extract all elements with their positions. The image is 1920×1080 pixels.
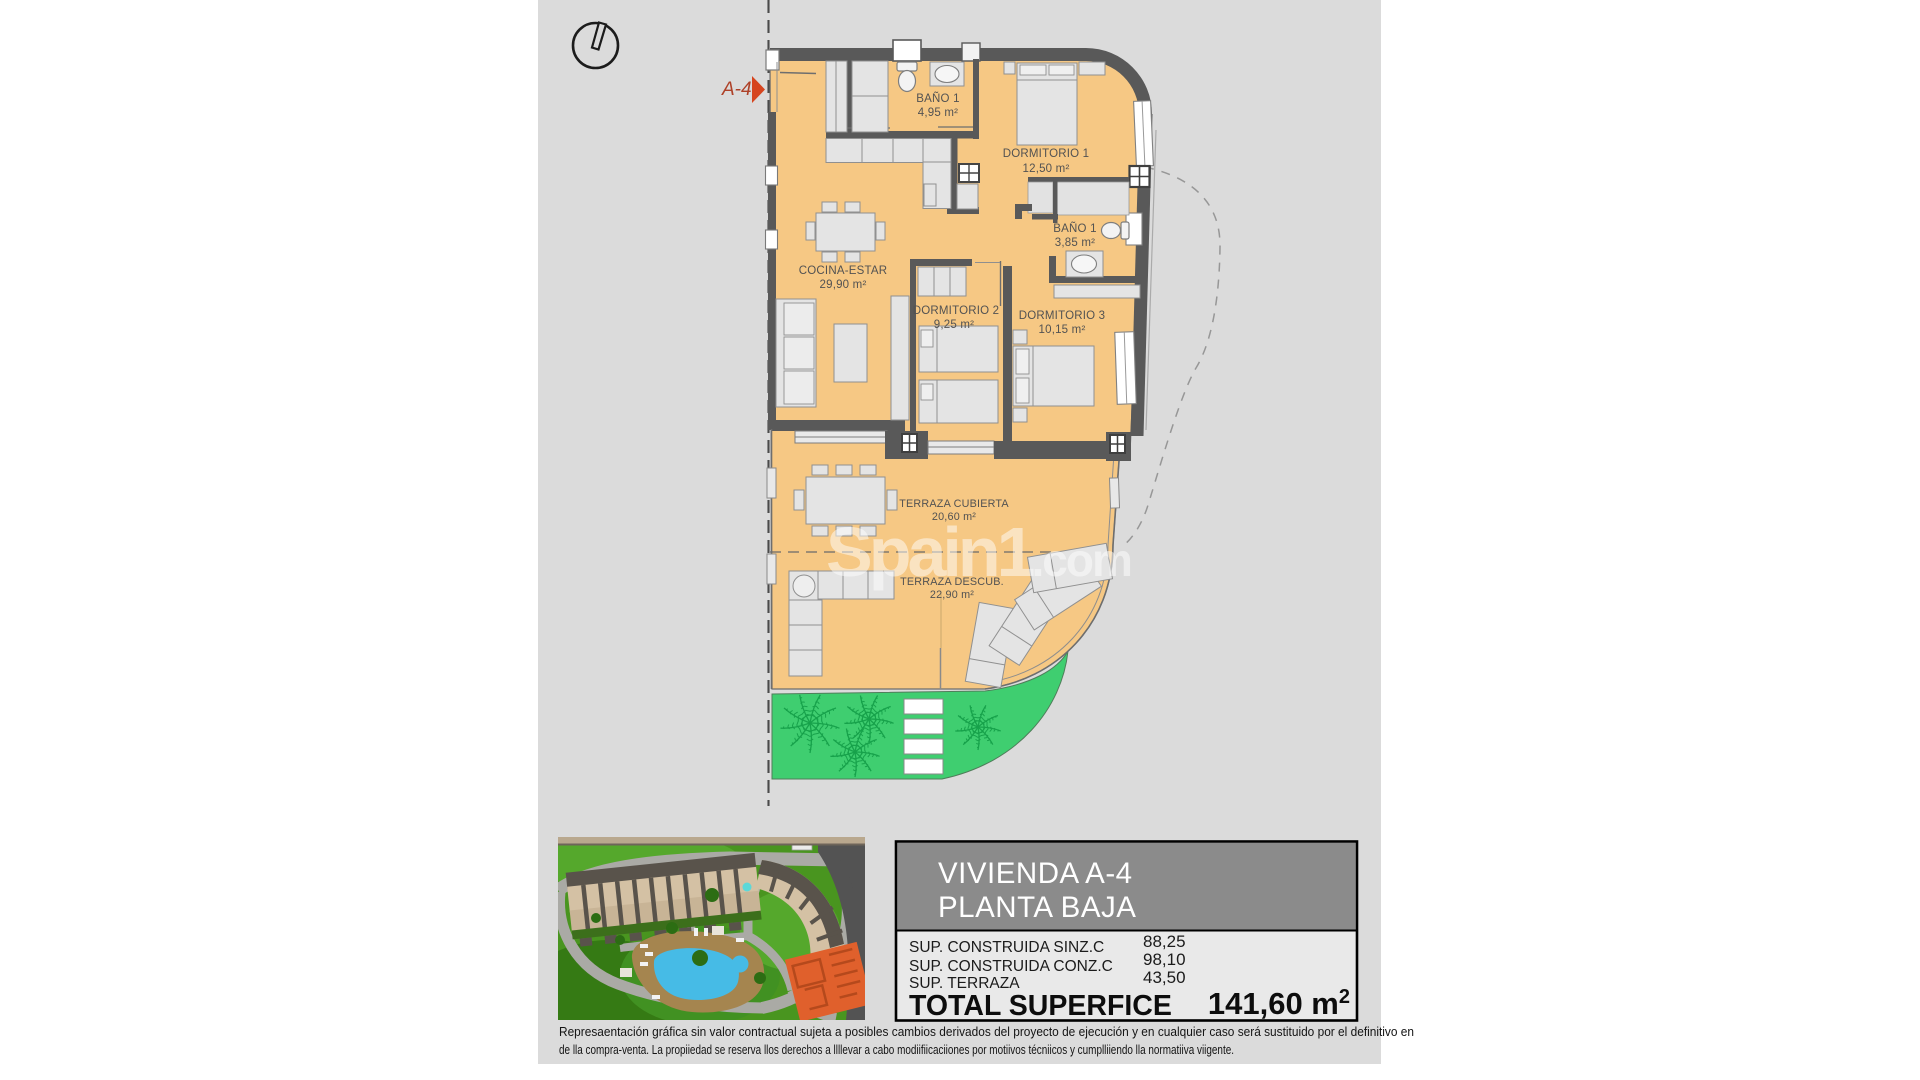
- svg-text:PLANTA BAJA: PLANTA BAJA: [938, 891, 1136, 924]
- svg-text:COCINA-ESTAR: COCINA-ESTAR: [799, 265, 887, 277]
- svg-text:88,25: 88,25: [1143, 932, 1186, 951]
- svg-text:SUP. CONSTRUIDA SINZ.C: SUP. CONSTRUIDA SINZ.C: [909, 939, 1104, 956]
- svg-text:DORMITORIO 3: DORMITORIO 3: [1019, 310, 1106, 322]
- svg-text:TERRAZA CUBIERTA: TERRAZA CUBIERTA: [899, 498, 1009, 510]
- svg-text:12,50 m²: 12,50 m²: [1023, 163, 1070, 175]
- svg-text:de lla compra-venta. La propii: de lla compra-venta. La propiiedad se re…: [559, 1043, 1234, 1057]
- svg-text:A-4: A-4: [721, 79, 752, 100]
- svg-text:9,25 m²: 9,25 m²: [934, 319, 974, 331]
- svg-text:BAÑO 1: BAÑO 1: [916, 92, 959, 105]
- svg-text:SUP. CONSTRUIDA CONZ.C: SUP. CONSTRUIDA CONZ.C: [909, 958, 1113, 975]
- svg-text:29,90 m²: 29,90 m²: [820, 279, 867, 291]
- svg-text:141,60 m2: 141,60 m2: [1208, 986, 1350, 1021]
- svg-text:Represaentación gráfica sin va: Represaentación gráfica sin valor contra…: [559, 1025, 1414, 1039]
- svg-text:VIVIENDA A-4: VIVIENDA A-4: [938, 857, 1133, 890]
- svg-text:98,10: 98,10: [1143, 950, 1186, 969]
- svg-text:TOTAL SUPERFICE: TOTAL SUPERFICE: [909, 990, 1172, 1022]
- svg-text:43,50: 43,50: [1143, 968, 1186, 987]
- svg-text:10,15 m²: 10,15 m²: [1039, 324, 1086, 336]
- svg-text:BAÑO 1: BAÑO 1: [1053, 222, 1096, 235]
- svg-text:3,85 m²: 3,85 m²: [1055, 237, 1095, 249]
- svg-text:DORMITORIO 2: DORMITORIO 2: [913, 305, 1000, 317]
- svg-text:DORMITORIO 1: DORMITORIO 1: [1003, 148, 1090, 160]
- svg-text:4,95 m²: 4,95 m²: [918, 107, 958, 119]
